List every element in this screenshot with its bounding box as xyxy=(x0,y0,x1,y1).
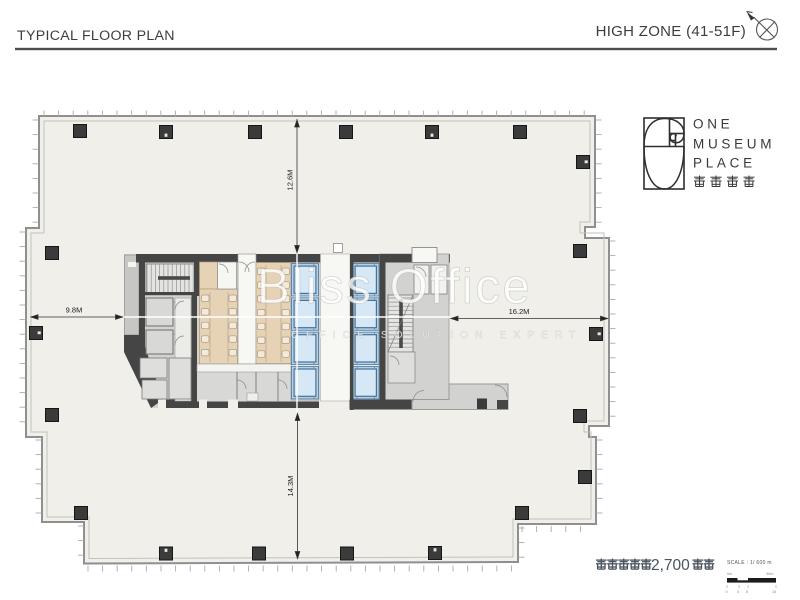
svg-text:HIGH ZONE (41-51F): HIGH ZONE (41-51F) xyxy=(596,23,746,40)
svg-text:30m: 30m xyxy=(766,572,773,576)
svg-text:9.8M: 9.8M xyxy=(66,306,83,315)
svg-text:TYPICAL FLOOR PLAN: TYPICAL FLOOR PLAN xyxy=(17,28,175,44)
svg-text:15: 15 xyxy=(772,590,776,594)
svg-text:ONE: ONE xyxy=(693,117,733,132)
svg-text:6: 6 xyxy=(746,590,748,594)
svg-text:OFFICE SOLUTION EXPERT: OFFICE SOLUTION EXPERT xyxy=(291,330,583,341)
svg-text:PLACE: PLACE xyxy=(693,156,756,171)
svg-text:16.2M: 16.2M xyxy=(509,307,530,316)
svg-text:12.6M: 12.6M xyxy=(286,170,295,191)
svg-text:14.3M: 14.3M xyxy=(286,476,295,497)
svg-text:0: 0 xyxy=(726,590,728,594)
svg-text:Bliss Office: Bliss Office xyxy=(257,260,532,314)
svg-text:MUSEUM: MUSEUM xyxy=(693,137,775,152)
svg-text:3: 3 xyxy=(737,590,739,594)
svg-text:0m: 0m xyxy=(727,572,732,576)
svg-text:SCALE : 1/ 600 m: SCALE : 1/ 600 m xyxy=(727,560,772,566)
svg-text:2,700: 2,700 xyxy=(651,557,690,574)
